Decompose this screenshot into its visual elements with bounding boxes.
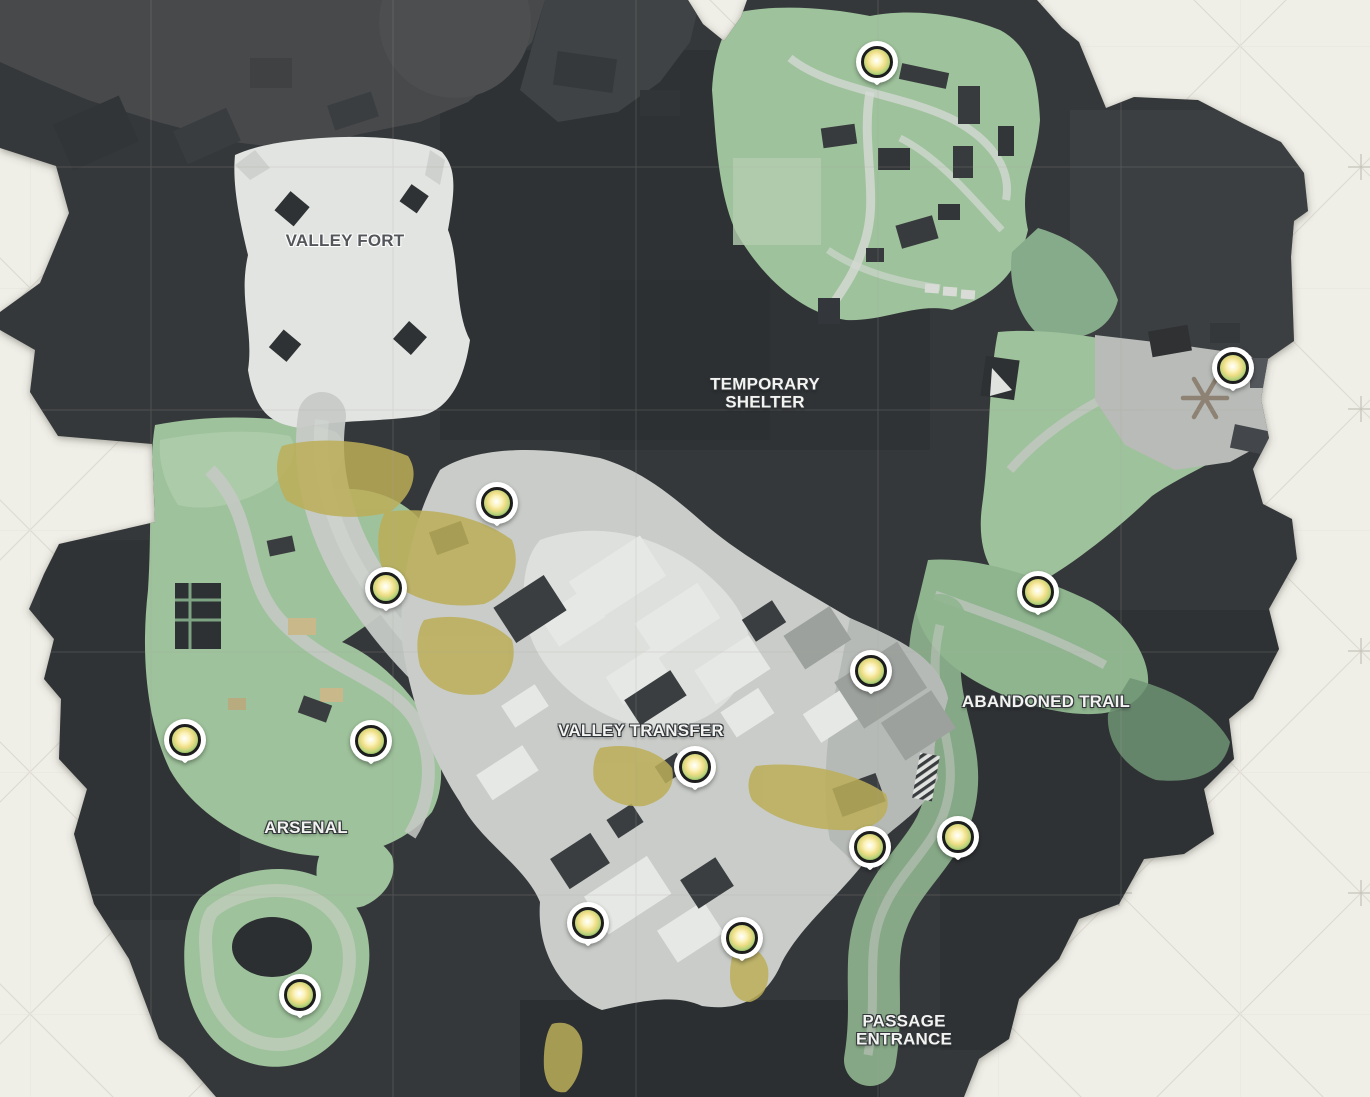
- collectible-marker[interactable]: [476, 482, 518, 524]
- loot-orb-icon: [370, 572, 402, 604]
- collectible-marker[interactable]: [849, 826, 891, 868]
- collectible-marker[interactable]: [674, 746, 716, 788]
- collectible-marker[interactable]: [721, 917, 763, 959]
- loot-orb-icon: [861, 46, 893, 78]
- loot-orb-icon: [1217, 352, 1249, 384]
- loot-orb-icon: [481, 487, 513, 519]
- loot-orb-icon: [855, 655, 887, 687]
- map-viewport[interactable]: VALLEY FORTTEMPORARY SHELTERVALLEY TRANS…: [0, 0, 1370, 1097]
- loot-orb-icon: [726, 922, 758, 954]
- loot-orb-icon: [942, 821, 974, 853]
- collectible-marker[interactable]: [937, 816, 979, 858]
- loot-orb-icon: [355, 725, 387, 757]
- loot-orb-icon: [169, 724, 201, 756]
- loot-orb-icon: [854, 831, 886, 863]
- valley-fort-area: [234, 137, 470, 428]
- collectible-marker[interactable]: [164, 719, 206, 761]
- loot-orb-icon: [1022, 576, 1054, 608]
- collectible-marker[interactable]: [1212, 347, 1254, 389]
- loot-orb-icon: [284, 979, 316, 1011]
- collectible-marker[interactable]: [856, 41, 898, 83]
- collectible-marker[interactable]: [850, 650, 892, 692]
- collectible-marker[interactable]: [365, 567, 407, 609]
- collectible-marker[interactable]: [567, 902, 609, 944]
- loot-orb-icon: [572, 907, 604, 939]
- collectible-marker[interactable]: [350, 720, 392, 762]
- loot-orb-icon: [679, 751, 711, 783]
- collectible-marker[interactable]: [1017, 571, 1059, 613]
- map-canvas: [0, 0, 1370, 1097]
- collectible-marker[interactable]: [279, 974, 321, 1016]
